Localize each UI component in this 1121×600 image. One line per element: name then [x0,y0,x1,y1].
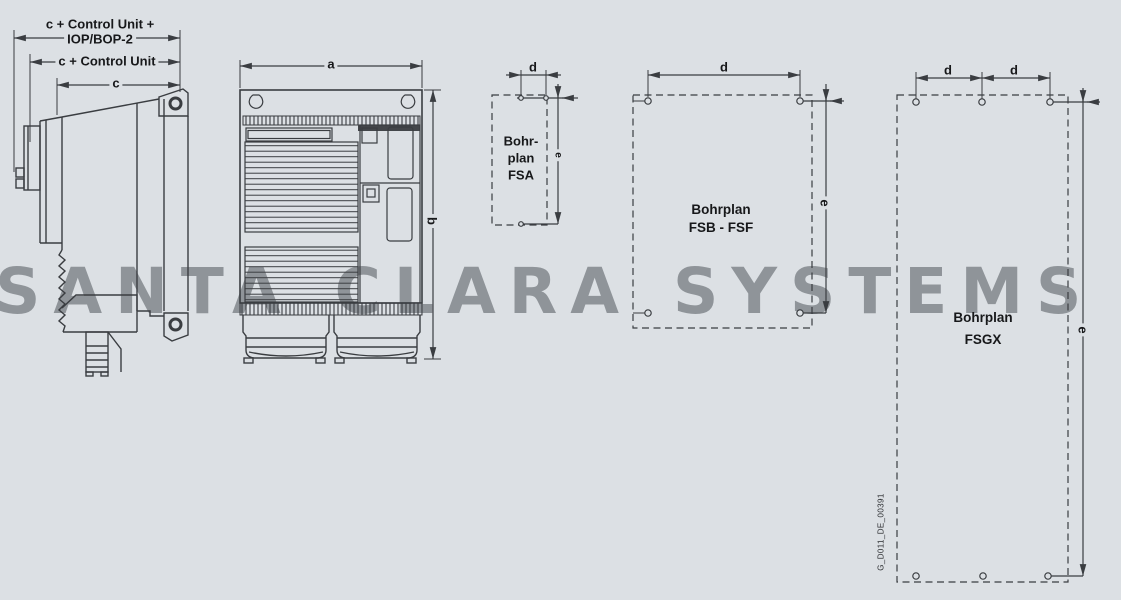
dim-label-d-fsgx-right: d [1010,63,1018,78]
fsb-plan-title: Bohrplan FSB - FSF [689,201,754,237]
fsgx-hole-bottom-right [1045,573,1051,579]
dim-label-e-fsa: e [551,149,566,161]
top-mounting-hole [170,98,181,109]
fsa-hole-bottom [519,222,524,227]
fsgx-plan-title: Bohrplan FSGX [953,307,1012,351]
dim-label-c-iop-line1: c + Control Unit + [46,17,154,32]
fsb-hole-bottom-right [797,310,803,316]
dim-label-c: c [109,76,122,91]
dim-label-c-cu: c + Control Unit [55,54,158,69]
dim-label-a: a [324,57,337,72]
dim-label-d-fsgx-left: d [944,63,952,78]
fsb-hole-top-right [797,98,803,104]
fsa-title-line3: FSA [504,167,539,184]
fsa-hole-top-left [519,96,524,101]
mid-vent-band [240,303,422,315]
heatsink-fins [59,250,65,332]
side-view-drawing [14,30,188,376]
shield-bracket [86,332,121,376]
terminal-panel [360,125,420,303]
fsgx-hole-bottom-center [980,573,986,579]
connector-1 [16,168,24,177]
dimension-drawing-page: SANTA CLARA SYSTEMS [0,0,1121,600]
fsgx-hole-top-left [913,99,919,105]
vent-block-upper [245,142,358,232]
connector-2 [16,179,24,188]
front-view-drawing [240,60,441,363]
technical-drawing [0,0,1121,600]
control-unit-side [16,117,62,243]
fsgx-title-line2: FSGX [953,329,1012,351]
fsgx-title-line1: Bohrplan [953,307,1012,329]
keyhole-slot-right [401,95,415,108]
keyhole-slot-left [249,95,263,108]
dim-label-d-fsb: d [720,60,728,75]
fsa-plan-title: Bohr- plan FSA [504,133,539,184]
fan-right [334,315,420,358]
dim-label-c-iop-line2: IOP/BOP-2 [64,32,136,47]
fsb-title-line2: FSB - FSF [689,219,754,237]
fsb-plan-drawing [633,70,844,328]
fan-left [243,315,329,358]
document-id: G_D011_DE_00391 [874,493,889,570]
fan-section [243,315,420,363]
fsgx-hole-bottom-left [913,573,919,579]
bottom-mounting-ear [164,313,188,341]
bottom-mounting-hole [170,319,181,330]
fsa-title-line1: Bohr- [504,133,539,150]
fsb-hole-bottom-left [645,310,651,316]
vent-block-lower [245,247,358,302]
dim-label-b: b [425,214,440,228]
fsa-title-line2: plan [504,150,539,167]
dim-label-e-fsgx: e [1076,323,1091,336]
top-vent-band [243,116,420,125]
fsb-hole-top-left [645,98,651,104]
dim-label-e-fsb: e [818,196,833,209]
fsb-title-line1: Bohrplan [689,201,754,219]
fsgx-hole-top-center [979,99,985,105]
dim-label-d-fsa: d [529,60,537,75]
fsgx-hole-top-right [1047,99,1053,105]
fsa-hole-top-right [544,96,549,101]
